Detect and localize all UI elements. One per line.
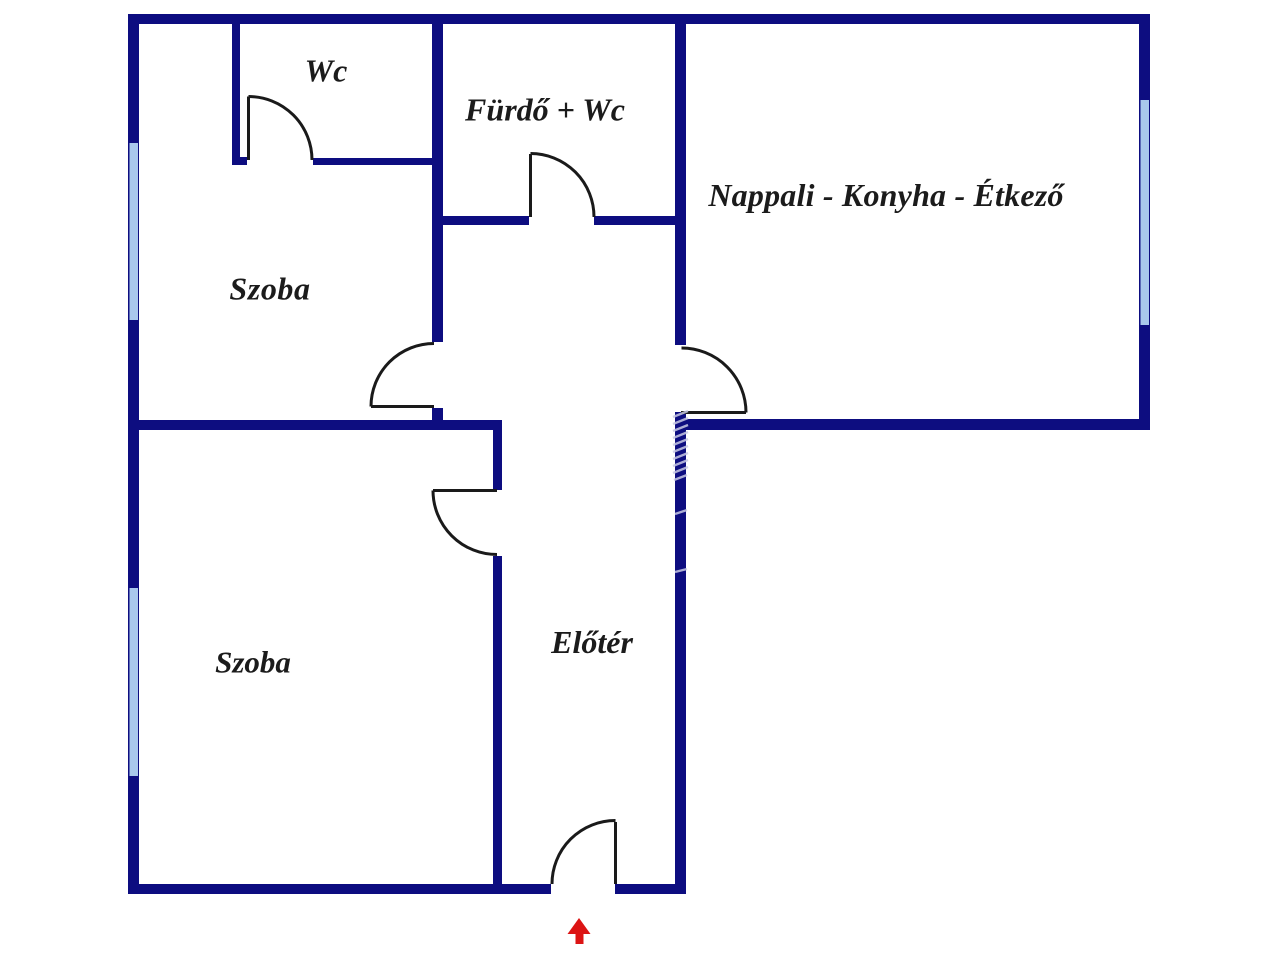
svg-text:Előtér: Előtér <box>550 624 633 660</box>
svg-text:Nappali - Konyha - Étkező: Nappali - Konyha - Étkező <box>707 177 1065 213</box>
svg-text:Wc: Wc <box>305 53 348 89</box>
svg-text:Szoba: Szoba <box>229 271 310 307</box>
svg-text:Szoba: Szoba <box>215 645 291 680</box>
svg-text:Fürdő + Wc: Fürdő + Wc <box>464 92 625 128</box>
